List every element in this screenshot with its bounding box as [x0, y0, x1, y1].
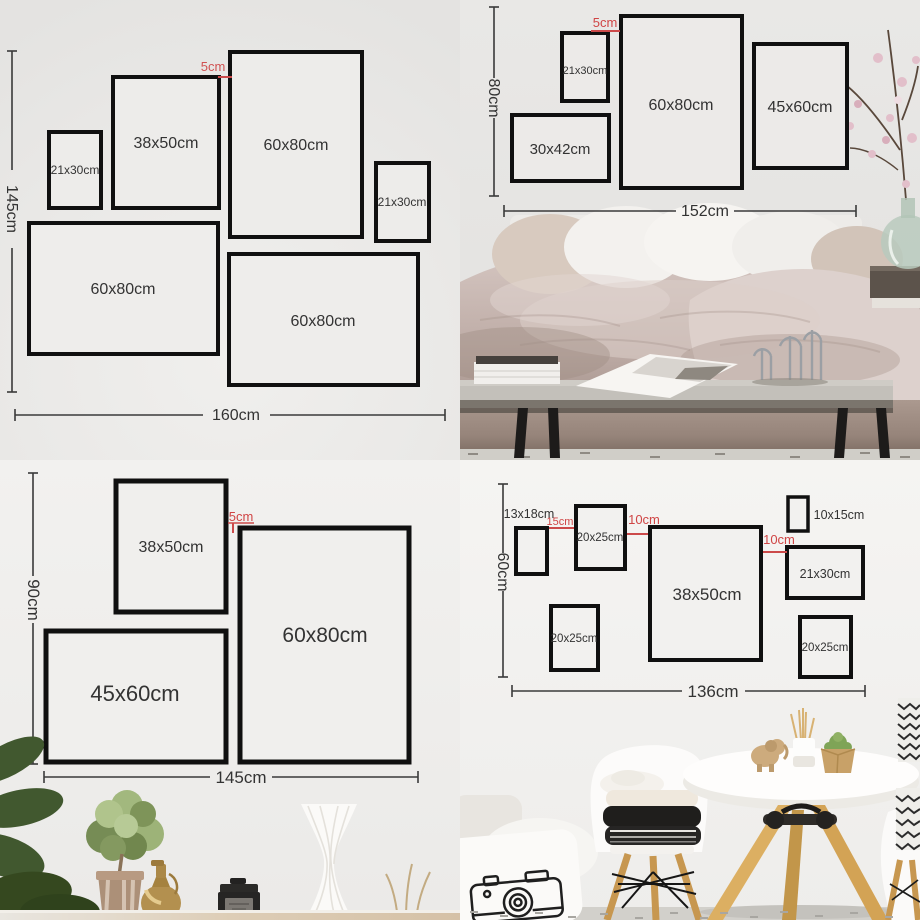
svg-text:145cm: 145cm [3, 185, 20, 233]
svg-text:38x50cm: 38x50cm [134, 135, 199, 152]
svg-text:10x15cm: 10x15cm [814, 508, 865, 522]
svg-text:45x60cm: 45x60cm [90, 681, 179, 706]
svg-text:38x50cm: 38x50cm [673, 585, 742, 604]
svg-text:145cm: 145cm [215, 768, 266, 787]
svg-text:21x30cm: 21x30cm [563, 65, 608, 77]
svg-text:60x80cm: 60x80cm [91, 281, 156, 298]
svg-text:160cm: 160cm [212, 407, 260, 424]
svg-text:60x80cm: 60x80cm [282, 624, 367, 647]
svg-text:15cm: 15cm [547, 516, 574, 528]
svg-text:20x25cm: 20x25cm [577, 532, 624, 544]
svg-text:5cm: 5cm [229, 509, 254, 524]
svg-text:10cm: 10cm [628, 512, 660, 527]
svg-text:136cm: 136cm [687, 682, 738, 701]
svg-text:10cm: 10cm [763, 532, 795, 547]
svg-text:5cm: 5cm [201, 59, 226, 74]
svg-text:45x60cm: 45x60cm [768, 99, 833, 116]
svg-text:21x30cm: 21x30cm [800, 567, 851, 581]
svg-text:5cm: 5cm [593, 15, 618, 30]
svg-text:60cm: 60cm [494, 552, 511, 591]
svg-text:60x80cm: 60x80cm [264, 137, 329, 154]
svg-text:90cm: 90cm [24, 579, 43, 621]
svg-text:60x80cm: 60x80cm [291, 313, 356, 330]
svg-text:20x25cm: 20x25cm [802, 642, 849, 654]
svg-text:38x50cm: 38x50cm [139, 539, 204, 556]
svg-text:80cm: 80cm [485, 78, 502, 117]
svg-text:21x30cm: 21x30cm [51, 163, 100, 177]
svg-text:21x30cm: 21x30cm [378, 195, 427, 209]
svg-text:152cm: 152cm [681, 203, 729, 220]
svg-text:60x80cm: 60x80cm [649, 97, 714, 114]
svg-text:20x25cm: 20x25cm [551, 633, 598, 645]
svg-text:30x42cm: 30x42cm [530, 141, 591, 158]
